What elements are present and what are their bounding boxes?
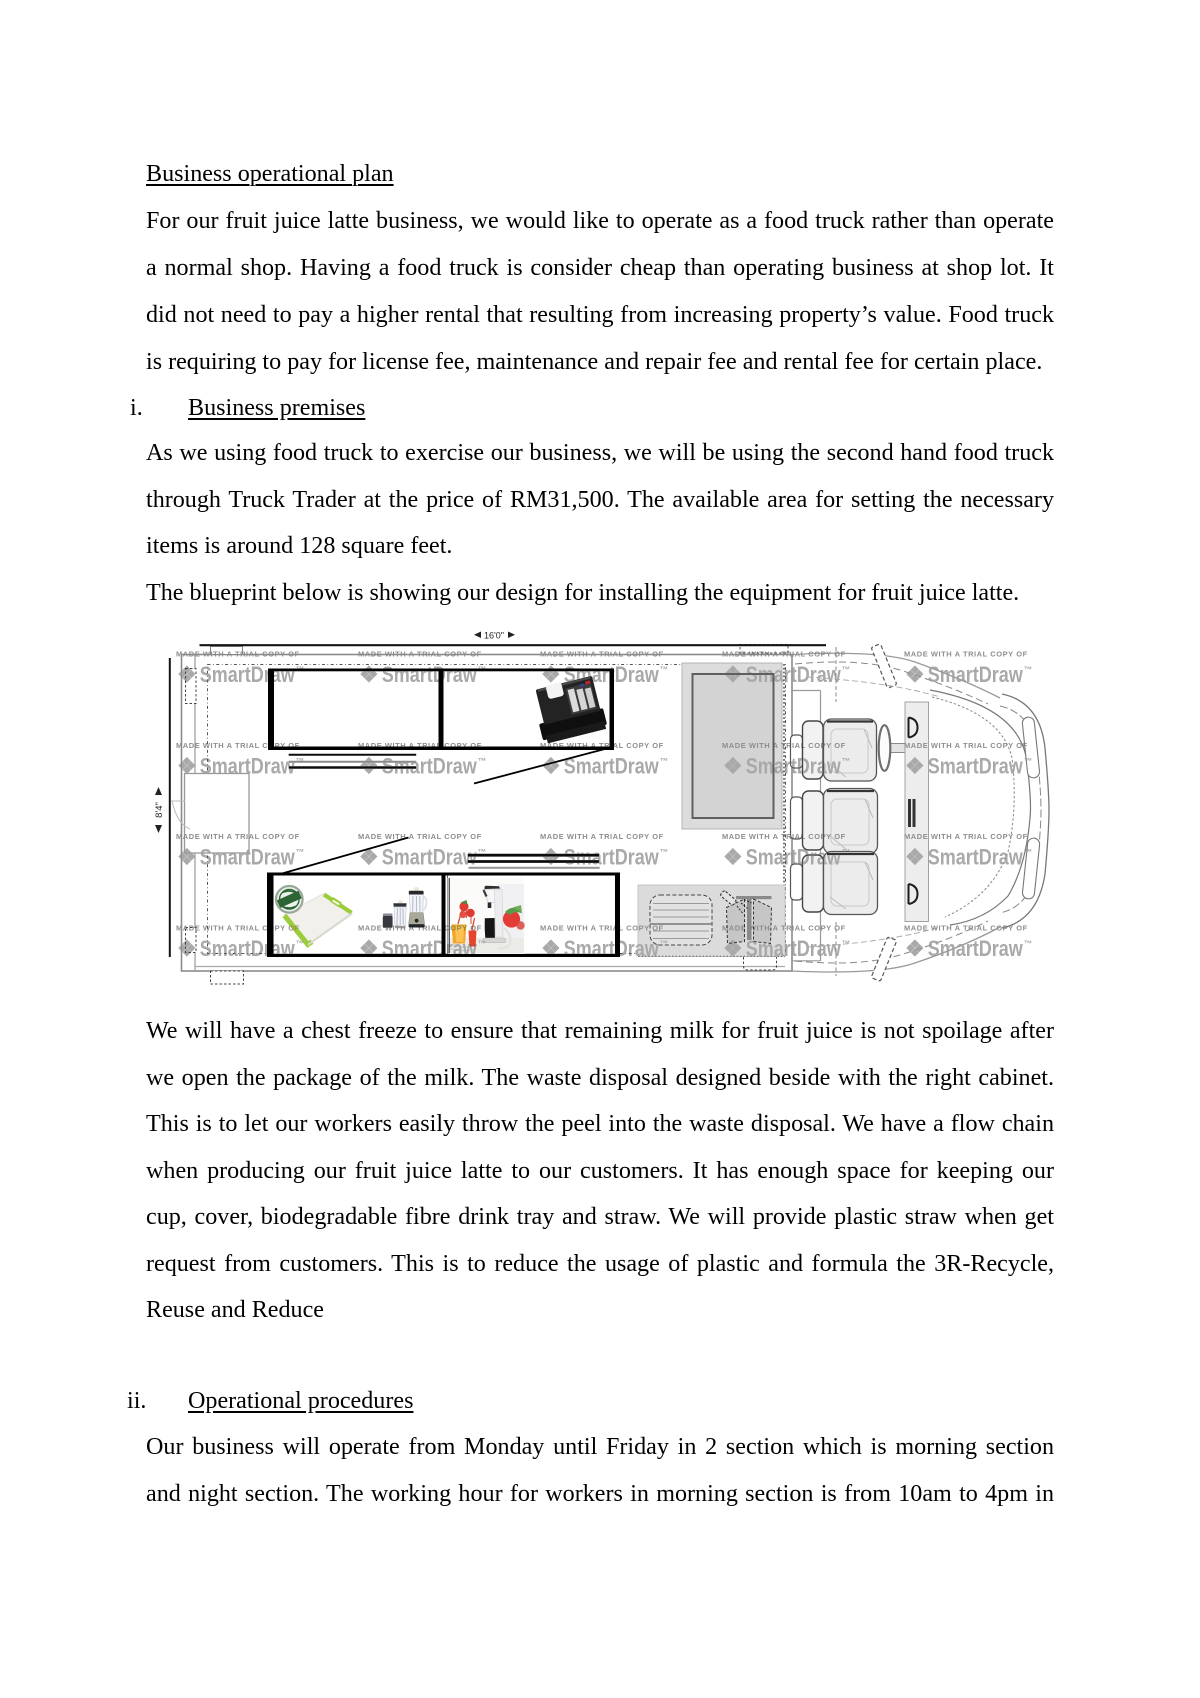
svg-text:8'4": 8'4" (154, 802, 165, 818)
svg-text:16'0": 16'0" (484, 631, 504, 641)
